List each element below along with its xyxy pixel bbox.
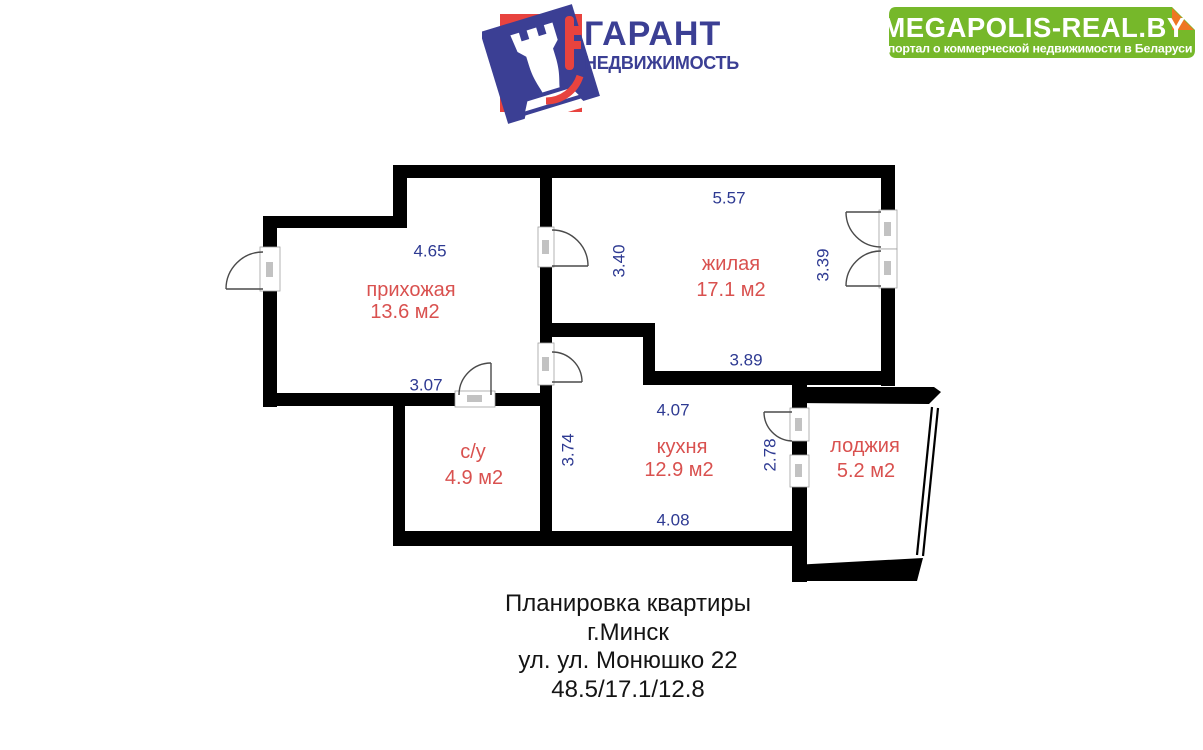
wall-segment	[540, 384, 552, 545]
loggia-bottom-wall	[793, 558, 923, 581]
wall-segment	[393, 393, 405, 545]
opening-tick	[542, 357, 549, 371]
dim-living-left: 3.40	[610, 244, 629, 277]
wall-segment	[540, 323, 655, 337]
room-area-loggia: 5.2 м2	[837, 460, 895, 482]
dim-kitchen-left: 3.74	[559, 433, 578, 466]
room-area-bathroom: 4.9 м2	[445, 467, 503, 489]
balcony-door-top	[846, 212, 881, 247]
dim-hallway-bottom: 3.07	[409, 376, 442, 395]
dim-living-right: 3.39	[814, 248, 833, 281]
room-area-kitchen: 12.9 м2	[644, 459, 713, 481]
dim-kitchen-bottom: 4.08	[656, 511, 689, 530]
room-area-living: 17.1 м2	[696, 279, 765, 301]
kitchen-door	[552, 352, 582, 382]
bathroom-door	[459, 363, 491, 395]
caption-address: ул. ул. Монюшко 22	[318, 647, 938, 676]
room-label-hallway: прихожая	[366, 279, 455, 301]
room-label-loggia: лоджия	[830, 435, 900, 457]
loggia-top-wall	[793, 387, 941, 404]
opening-tick	[266, 262, 273, 277]
room-area-hallway: 13.6 м2	[370, 301, 439, 323]
wall-segment	[540, 178, 552, 228]
dim-living-top: 5.57	[712, 189, 745, 208]
room-label-living: жилая	[702, 253, 760, 275]
opening-tick	[467, 395, 482, 402]
dim-hallway-top: 4.65	[413, 242, 446, 261]
dim-kitchen-top: 4.07	[656, 401, 689, 420]
wall-segment	[263, 216, 407, 228]
caption-areas: 48.5/17.1/12.8	[318, 676, 938, 705]
loggia-door	[764, 412, 792, 441]
caption-block: Планировка квартиры г.Минск ул. ул. Моню…	[318, 590, 938, 704]
caption-title: Планировка квартиры	[318, 590, 938, 619]
balcony-door-bottom	[846, 251, 881, 286]
wall-segment	[494, 393, 552, 406]
wall-segment	[393, 531, 793, 546]
caption-city: г.Минск	[318, 619, 938, 648]
opening-tick	[884, 222, 891, 236]
room-label-bathroom: с/у	[460, 441, 486, 463]
walls	[263, 165, 941, 582]
wall-segment	[393, 165, 895, 178]
dim-living-bottom: 3.89	[729, 351, 762, 370]
opening-tick	[884, 261, 891, 275]
opening-tick	[542, 240, 549, 254]
entrance-door	[226, 252, 263, 289]
opening-tick	[795, 418, 802, 431]
wall-segment	[792, 440, 807, 456]
room-label-kitchen: кухня	[657, 436, 708, 458]
opening-tick	[795, 464, 802, 477]
wall-segment	[263, 290, 277, 407]
dim-kitchen-right: 2.78	[761, 438, 780, 471]
wall-segment	[263, 393, 456, 406]
loggia-window	[917, 407, 938, 556]
living-room-door	[552, 230, 588, 266]
wall-segment	[881, 165, 895, 211]
wall-segment	[655, 371, 895, 385]
wall-segment	[643, 323, 655, 385]
